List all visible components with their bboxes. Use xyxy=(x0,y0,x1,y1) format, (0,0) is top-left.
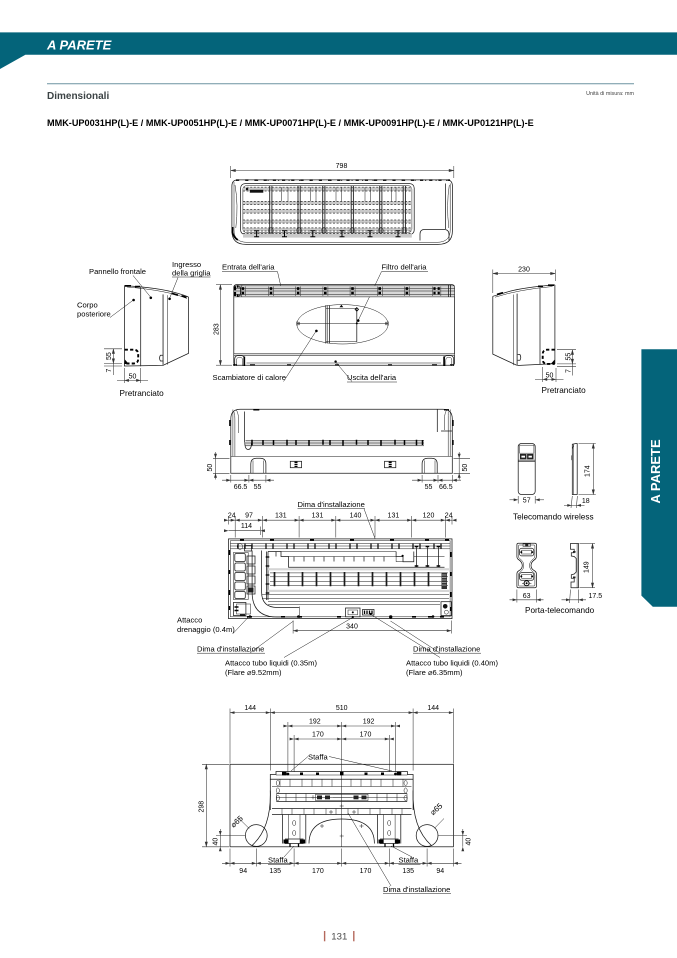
svg-text:135: 135 xyxy=(269,868,281,875)
svg-text:55: 55 xyxy=(254,484,262,491)
svg-text:Porta-telecomando: Porta-telecomando xyxy=(525,606,595,615)
svg-text:140: 140 xyxy=(350,513,362,520)
svg-text:A PARETE: A PARETE xyxy=(648,439,663,504)
svg-text:posteriore: posteriore xyxy=(77,310,111,319)
svg-text:50: 50 xyxy=(207,464,214,472)
svg-text:Corpo: Corpo xyxy=(77,301,98,310)
svg-text:63: 63 xyxy=(523,593,531,600)
svg-text:174: 174 xyxy=(585,465,592,477)
svg-text:131: 131 xyxy=(275,513,287,520)
svg-text:Unità di misura: mm: Unità di misura: mm xyxy=(586,91,634,97)
svg-text:(Flare ⌀9.52mm): (Flare ⌀9.52mm) xyxy=(225,668,282,677)
svg-text:131: 131 xyxy=(388,513,400,520)
svg-text:510: 510 xyxy=(336,705,348,712)
svg-text:170: 170 xyxy=(360,868,372,875)
svg-text:149: 149 xyxy=(584,561,591,573)
svg-text:66.5: 66.5 xyxy=(439,484,453,491)
svg-text:Attacco tubo liquidi (0.35m): Attacco tubo liquidi (0.35m) xyxy=(225,659,317,668)
svg-text:Pannello frontale: Pannello frontale xyxy=(89,267,146,276)
svg-text:131: 131 xyxy=(312,513,324,520)
svg-text:170: 170 xyxy=(312,732,324,739)
svg-text:40: 40 xyxy=(213,838,220,846)
svg-text:Staffa: Staffa xyxy=(308,753,328,762)
svg-text:170: 170 xyxy=(360,732,372,739)
svg-text:Entrata dell'aria: Entrata dell'aria xyxy=(222,263,275,272)
svg-text:144: 144 xyxy=(244,705,256,712)
svg-text:Dima d'installazione: Dima d'installazione xyxy=(197,645,264,654)
svg-text:50: 50 xyxy=(462,464,469,472)
svg-text:Dima d'installazione: Dima d'installazione xyxy=(413,645,480,654)
svg-text:18: 18 xyxy=(582,498,590,505)
svg-text:50: 50 xyxy=(129,374,137,381)
svg-text:Staffa: Staffa xyxy=(268,856,288,865)
svg-text:298: 298 xyxy=(199,801,206,813)
svg-text:57: 57 xyxy=(523,498,531,505)
svg-text:Scambiatore di calore: Scambiatore di calore xyxy=(213,373,286,382)
svg-text:Uscita dell'aria: Uscita dell'aria xyxy=(347,373,397,382)
svg-text:55: 55 xyxy=(425,484,433,491)
svg-text:40: 40 xyxy=(466,838,473,846)
svg-text:55: 55 xyxy=(566,353,573,361)
svg-text:798: 798 xyxy=(336,163,348,170)
svg-text:192: 192 xyxy=(309,719,321,726)
svg-text:144: 144 xyxy=(427,705,439,712)
svg-text:55: 55 xyxy=(106,352,113,360)
svg-text:Telecomando wireless: Telecomando wireless xyxy=(513,512,594,521)
svg-text:50: 50 xyxy=(546,373,554,380)
svg-text:340: 340 xyxy=(346,624,358,631)
svg-text:Dima d'installazione: Dima d'installazione xyxy=(383,885,450,894)
svg-text:Attacco tubo liquidi (0.40m): Attacco tubo liquidi (0.40m) xyxy=(406,659,498,668)
svg-text:Pretranciato: Pretranciato xyxy=(542,386,587,395)
svg-text:283: 283 xyxy=(214,323,221,335)
svg-text:17.5: 17.5 xyxy=(589,593,603,600)
svg-text:114: 114 xyxy=(241,523,252,530)
svg-text:230: 230 xyxy=(518,267,530,274)
svg-text:97: 97 xyxy=(245,513,253,520)
svg-text:131: 131 xyxy=(331,932,347,943)
svg-text:Dimensionali: Dimensionali xyxy=(47,91,109,102)
svg-text:(Flare ⌀6.35mm): (Flare ⌀6.35mm) xyxy=(406,668,463,677)
svg-text:Staffa: Staffa xyxy=(399,856,419,865)
svg-text:Filtro dell'aria: Filtro dell'aria xyxy=(382,263,428,272)
svg-text:MMK-UP0031HP(L)-E / MMK-UP0051: MMK-UP0031HP(L)-E / MMK-UP0051HP(L)-E / … xyxy=(47,118,534,128)
svg-text:94: 94 xyxy=(239,868,247,875)
svg-text:94: 94 xyxy=(436,868,444,875)
svg-text:120: 120 xyxy=(423,513,435,520)
svg-text:Pretranciato: Pretranciato xyxy=(120,389,165,398)
svg-text:7: 7 xyxy=(566,369,573,373)
svg-text:7: 7 xyxy=(106,369,113,373)
svg-text:24: 24 xyxy=(445,513,453,520)
svg-text:192: 192 xyxy=(363,719,375,726)
svg-text:Dima d'installazione: Dima d'installazione xyxy=(298,500,365,509)
svg-text:24: 24 xyxy=(228,513,236,520)
svg-text:66.5: 66.5 xyxy=(234,484,248,491)
svg-text:A PARETE: A PARETE xyxy=(46,38,112,53)
svg-text:135: 135 xyxy=(402,868,414,875)
svg-text:170: 170 xyxy=(312,868,324,875)
svg-text:Attacco: Attacco xyxy=(177,616,202,625)
svg-text:della griglia: della griglia xyxy=(172,269,211,278)
svg-text:drenaggio (0.4m): drenaggio (0.4m) xyxy=(177,625,235,634)
